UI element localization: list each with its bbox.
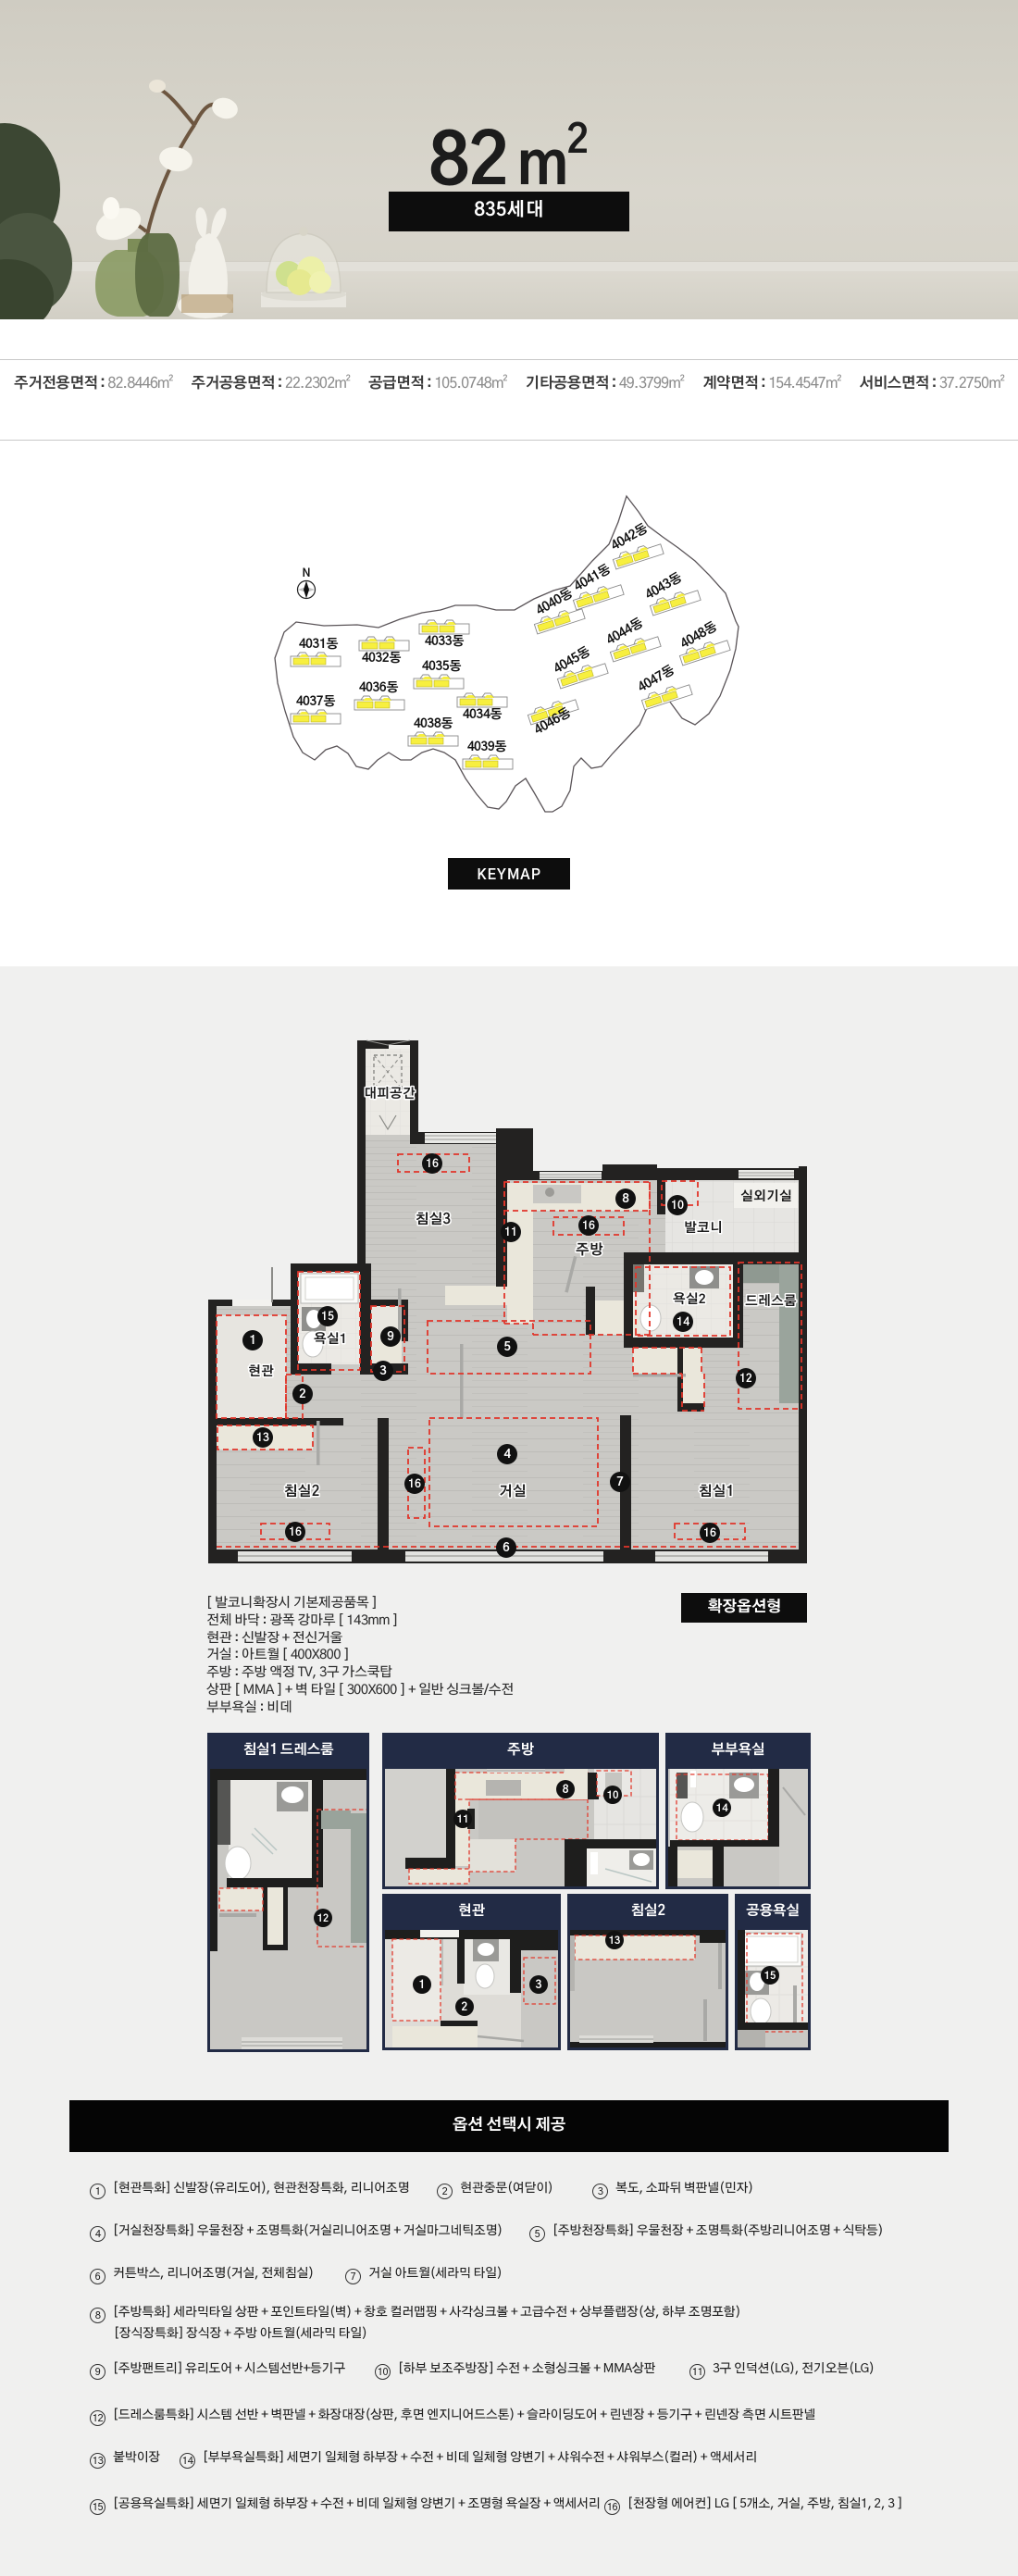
svg-text:8: 8 bbox=[562, 1785, 568, 1796]
svg-text:주방: 주방 bbox=[576, 1242, 603, 1258]
svg-text:침실3: 침실3 bbox=[416, 1212, 452, 1227]
svg-text:4038동: 4038동 bbox=[414, 717, 453, 730]
svg-text:15: 15 bbox=[764, 1971, 776, 1982]
svg-text:2: 2 bbox=[461, 2002, 467, 2013]
svg-text:4: 4 bbox=[503, 1448, 511, 1461]
svg-text:16: 16 bbox=[426, 1159, 439, 1170]
svg-text:4036동: 4036동 bbox=[359, 681, 399, 694]
svg-text:현관: 현관 bbox=[248, 1364, 274, 1378]
svg-text:5: 5 bbox=[503, 1340, 511, 1353]
svg-text:11: 11 bbox=[504, 1227, 517, 1238]
svg-text:침실2: 침실2 bbox=[284, 1484, 320, 1500]
svg-text:4039동: 4039동 bbox=[467, 740, 507, 753]
svg-text:N: N bbox=[303, 568, 311, 579]
svg-text:4033동: 4033동 bbox=[425, 635, 465, 648]
svg-text:14: 14 bbox=[716, 1803, 728, 1814]
svg-text:10: 10 bbox=[671, 1201, 684, 1212]
svg-text:13: 13 bbox=[256, 1433, 269, 1444]
svg-text:9: 9 bbox=[387, 1330, 394, 1343]
svg-text:16: 16 bbox=[289, 1527, 302, 1538]
svg-text:4032동: 4032동 bbox=[362, 652, 402, 665]
svg-text:1: 1 bbox=[249, 1334, 256, 1347]
svg-text:3: 3 bbox=[535, 1980, 541, 1991]
svg-text:1: 1 bbox=[418, 1980, 425, 1991]
svg-text:KEYMAP: KEYMAP bbox=[477, 868, 541, 883]
svg-text:욕실2: 욕실2 bbox=[673, 1292, 706, 1306]
svg-text:13: 13 bbox=[609, 1935, 621, 1947]
svg-text:16: 16 bbox=[408, 1479, 421, 1490]
svg-text:거실: 거실 bbox=[499, 1484, 527, 1500]
svg-text:4034동: 4034동 bbox=[463, 708, 503, 721]
svg-text:7: 7 bbox=[616, 1475, 624, 1488]
svg-text:12: 12 bbox=[317, 1913, 329, 1924]
svg-text:8: 8 bbox=[622, 1192, 629, 1205]
svg-text:16: 16 bbox=[703, 1528, 716, 1539]
svg-text:드레스룸: 드레스룸 bbox=[745, 1294, 797, 1308]
svg-text:2: 2 bbox=[299, 1388, 306, 1400]
svg-text:10: 10 bbox=[607, 1790, 619, 1801]
svg-text:4035동: 4035동 bbox=[422, 660, 462, 673]
svg-text:대피공간: 대피공간 bbox=[364, 1087, 416, 1101]
svg-text:14: 14 bbox=[677, 1317, 690, 1328]
svg-text:12: 12 bbox=[739, 1374, 752, 1385]
svg-text:15: 15 bbox=[321, 1312, 334, 1323]
svg-text:11: 11 bbox=[457, 1814, 469, 1825]
svg-text:침실1: 침실1 bbox=[699, 1484, 735, 1500]
svg-text:실외기실: 실외기실 bbox=[740, 1189, 792, 1203]
svg-text:16: 16 bbox=[582, 1221, 595, 1232]
svg-text:3: 3 bbox=[379, 1364, 387, 1377]
svg-text:6: 6 bbox=[503, 1541, 510, 1554]
svg-text:4031동: 4031동 bbox=[299, 638, 339, 651]
svg-text:4037동: 4037동 bbox=[296, 695, 336, 708]
svg-text:발코니: 발코니 bbox=[684, 1221, 723, 1235]
svg-text:욕실1: 욕실1 bbox=[314, 1332, 347, 1346]
